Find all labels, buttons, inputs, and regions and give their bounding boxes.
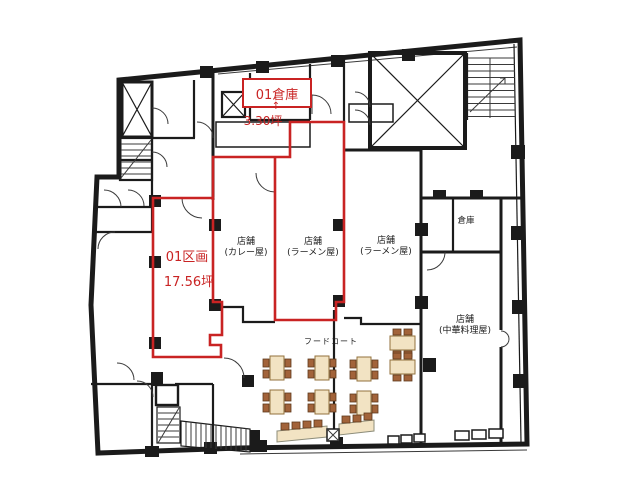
storage-unit-label: 01倉庫 [256, 84, 299, 103]
counter-seating [277, 413, 374, 442]
section-unit-area: 17.56坪 [147, 271, 231, 290]
window-icon [388, 429, 503, 444]
shop-chinese-label: 店舗 (中華料理屋) [420, 315, 510, 338]
shop-curry-label: 店舗 (カレー屋) [210, 237, 282, 260]
storage-room-label: 倉庫 [446, 216, 486, 227]
food-court-label: フードコート [291, 337, 371, 347]
storage-unit-arrow: ↑ [266, 101, 286, 112]
floor-plan: 01倉庫 ↑ 3.30坪 01区画 17.56坪 店舗 (カレー屋) 店舗 (ラ… [0, 0, 640, 480]
shop-ramen-center-label: 店舗 (ラーメン屋) [275, 237, 351, 260]
shop-ramen-right-label: 店舗 (ラーメン屋) [346, 236, 426, 259]
shaft-x-room-icon [370, 53, 465, 148]
storage-unit-area: 3.30坪 [233, 112, 293, 129]
